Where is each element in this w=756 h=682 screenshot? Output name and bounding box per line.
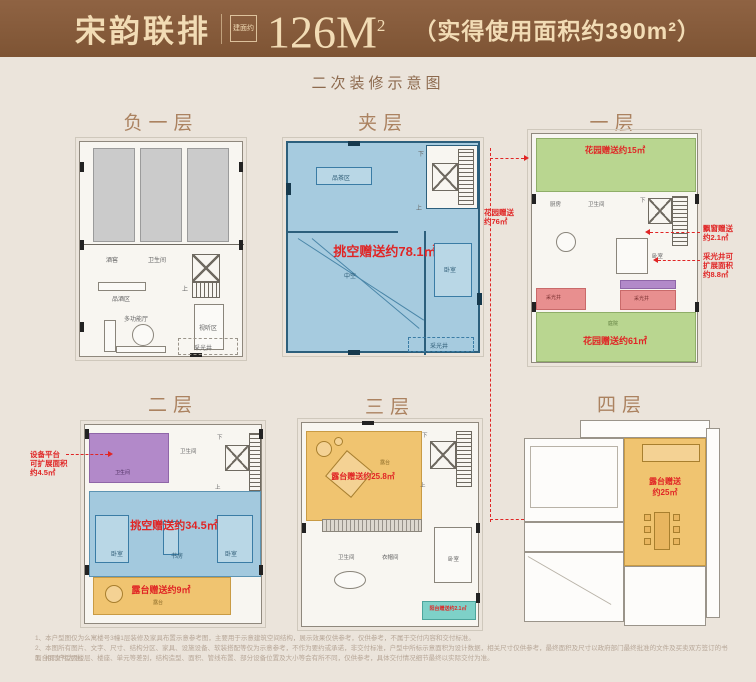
room-label-study: 书房 [171,551,183,560]
wall-corner [80,162,84,172]
roof-slope-inner-line [530,446,618,508]
room-label-light-well-l: 采光井 [546,294,561,301]
bay-window-strip [620,280,676,289]
stair-down-label: 下 [422,431,428,439]
room-label-bathroom: 卫生间 [588,200,605,208]
annotation-dashed-line [490,158,524,159]
jacuzzi-small [334,437,343,446]
annotation-line: 约2.1㎡ [703,233,733,242]
wall-corner [532,194,536,204]
annotation-arrow [653,257,658,263]
chair [673,538,680,545]
wall-corner [302,523,306,533]
roof-slope-bottom-right [624,566,706,626]
elevator-shaft [430,441,456,469]
wall-corner [476,523,480,533]
wall-corner [348,141,360,146]
stair-up-label: 上 [215,483,221,491]
elevator-shaft [192,254,220,282]
gift-note-line: 约25㎡ [624,487,706,498]
room-label-bathroom: 卫生间 [180,447,197,455]
room-label-bathroom: 卫生间 [148,255,166,264]
annotation-dashed-line [66,454,108,455]
wall-corner [477,293,482,305]
wardrobe [322,519,422,532]
annotation-line: 采光井可 [703,252,733,261]
bathtub [334,571,366,589]
usable-area-note: （实得使用面积约390m²） [413,12,700,46]
floor-title-mezzanine: 夹层 [286,108,480,135]
room-label-light-well: 采光井 [430,341,448,350]
elevator-shaft [432,163,458,191]
stair-down-label: 下 [418,149,424,158]
wall-corner [85,565,89,575]
wall-corner [80,322,84,332]
wall-corner [85,429,89,439]
annotation-dashed-line [650,232,700,233]
wall-corner [80,240,84,250]
wall-corner [695,302,699,312]
stairs [458,149,474,205]
wall [288,231,398,233]
floorplan-f3: 露台 露台赠送约25.8㎡ 卫生间 衣帽间 下 上 卧室 阳台赠送约2.1㎡ [301,422,479,627]
floorplan-f1: 花园赠送约15㎡ 厨房 卫生间 上 下 卧室 采光井 采光井 庭院 花园赠送约6… [531,133,698,363]
planter [642,444,700,462]
annotation-equipment-platform: 设备平台 可扩展面积 约4.5㎡ [30,450,68,477]
room-label-terrace: 露台 [380,459,390,466]
outdoor-table [654,512,670,550]
stair-down-label: 下 [217,433,223,441]
disclaimer-line-1: 1、本户型图仅为么寓楼号3幢1层装修及家具布置示意参考图，主要用于示意建筑空间结… [35,634,730,644]
room-label-light-well: 采光井 [194,343,212,352]
stairs [672,196,688,246]
room-label-terrace: 露台 [153,599,163,606]
wall-corner [476,593,480,603]
stair-down-label: 下 [640,196,646,204]
stair-up-label: 上 [416,203,422,212]
annotation-dashed-line [490,519,524,520]
elevator-shaft [648,198,672,224]
wall-corner [362,421,374,425]
annotation-line: 约4.5㎡ [30,468,68,477]
wall-corner [259,565,263,575]
round-table [132,324,154,346]
area-seal-badge: 建面约 [230,15,257,42]
room-label-tasting: 品酒区 [112,294,130,303]
wall-corner [532,302,536,312]
chair [644,538,651,545]
parking-stall [93,148,135,242]
annotation-line: 设备平台 [30,450,68,459]
gift-note-garden-top: 花园赠送约15㎡ [536,144,694,156]
room-label-tea: 品茶区 [332,173,350,182]
wall-corner [239,162,243,172]
room-label-cloakroom: 衣帽间 [382,553,399,561]
stair-up-label: 上 [420,481,426,489]
annotation-line: 约8.8㎡ [703,270,733,279]
gift-note-void: 挑空赠送约34.5㎡ [89,517,259,533]
floor-title-f3: 三层 [301,392,479,419]
wall-corner [695,194,699,204]
roof-band-right [706,428,720,618]
header-divider [221,14,222,44]
wall-corner [239,240,243,250]
chair [644,526,651,533]
annotation-line: 飘窗赠送 [703,224,733,233]
elevator-shaft [225,445,249,471]
bar-counter [98,282,146,291]
room-label-light-well-r: 采光井 [634,295,649,302]
room-label-bathroom: 卫生间 [338,553,355,561]
room-label-bedroom-l: 卧室 [111,549,123,558]
disclaimer-line-3: 3、相同户型因楼层、楼座、单元等差别，结构造型、面积、管线布置、部分设备位置及大… [35,654,730,664]
parking-stall [140,148,182,242]
room-label-bedroom: 卧室 [444,265,456,274]
gift-note-terrace: 露台赠送约9㎡ [93,583,229,596]
annotation-garden-left: 花园赠送 约76㎡ [484,208,514,226]
annotation-dashed-line [658,260,700,261]
chair [673,526,680,533]
wall [80,244,244,245]
sofa [104,320,116,352]
floorplan-mezzanine: 下 上 品茶区 挑空赠送约78.1㎡ 中空 卧室 采光井 [286,141,480,353]
dining-table [556,232,576,252]
annotation-arrow [645,229,650,235]
wall-corner [259,429,263,439]
stairs [456,431,472,487]
annotation-line: 可扩展面积 [30,459,68,468]
annotation-bay-window: 飘窗赠送 约2.1㎡ [703,224,733,242]
annotation-line: 扩展面积 [703,261,733,270]
header-bar: 宋韵联排 建面约 126M2 （实得使用面积约390m²） [0,0,756,57]
room-label-hall: 多功能厅 [124,314,148,323]
floor-title-f1: 一层 [531,108,698,135]
area-value: 126M2 [267,0,385,60]
floorplan-f4: 露台赠送 约25㎡ [524,420,720,638]
gift-note-balcony: 阳台赠送约2.1㎡ [422,605,474,612]
parking-stall [187,148,229,242]
room-label-bedroom: 卧室 [448,555,459,563]
stairs [249,433,261,491]
gift-note-garden-bottom: 花园赠送约61㎡ [536,334,694,347]
annotation-arrow [108,451,113,457]
gift-note-line: 露台赠送 [624,476,706,487]
room-label-courtyard: 庭院 [608,320,618,327]
stairs [192,282,220,298]
roof-band-top [580,420,710,438]
annotation-line: 约76㎡ [484,217,514,226]
annotation-arrow [524,155,529,161]
stair-up-label: 上 [182,284,188,293]
room-label-bedroom-r: 卧室 [225,549,237,558]
wall-corner [348,350,360,355]
schematic-subtitle: 二次装修示意图 [0,72,756,93]
annotation-line: 花园赠送 [484,208,514,217]
page-title: 宋韵联排 [75,6,211,51]
room-label-bathroom-purple: 卫生间 [115,469,130,476]
floor-title-f2: 二层 [84,390,262,417]
floor-title-f4: 四层 [524,390,720,417]
annotation-light-well: 采光井可 扩展面积 约8.8㎡ [703,252,733,279]
chair [673,514,680,521]
area-superscript: 2 [377,16,386,35]
roof-band-mid [524,522,624,552]
gift-note-terrace: 露台赠送约25.8㎡ [306,471,420,482]
room-label-kitchen: 厨房 [550,200,561,208]
gift-note-terrace: 露台赠送 约25㎡ [624,476,706,498]
bed [616,238,648,274]
chair [644,514,651,521]
wall-corner [286,183,291,195]
floor-title-b1: 负一层 [79,108,243,135]
jacuzzi [316,441,332,457]
annotation-dashed-line [490,148,491,522]
area-number: 126M [267,6,377,57]
room-label-wine-cellar: 酒窖 [106,255,118,264]
room-label-av: 视听区 [199,323,217,332]
floorplan-b1: 酒窖 卫生间 品酒区 多功能厅 上 视听区 采光井 [79,141,243,357]
sofa [116,346,166,353]
room-label-void: 中空 [344,271,356,280]
